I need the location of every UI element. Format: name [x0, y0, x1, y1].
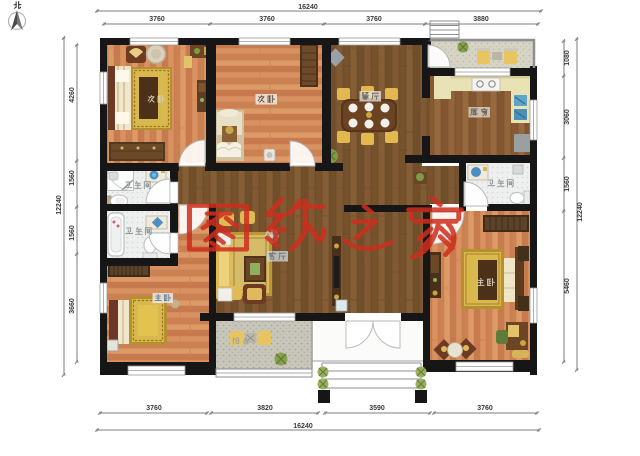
svg-text:16240: 16240 — [298, 4, 318, 11]
svg-text:12240: 12240 — [577, 202, 584, 222]
svg-text:3880: 3880 — [473, 16, 489, 23]
svg-text:16240: 16240 — [293, 423, 313, 430]
svg-text:3060: 3060 — [564, 109, 571, 125]
svg-text:3660: 3660 — [69, 298, 76, 314]
svg-text:12240: 12240 — [56, 195, 63, 215]
svg-text:3760: 3760 — [259, 16, 275, 23]
svg-text:3820: 3820 — [257, 405, 273, 412]
svg-text:3760: 3760 — [477, 405, 493, 412]
svg-text:5460: 5460 — [564, 278, 571, 294]
svg-text:3760: 3760 — [149, 16, 165, 23]
svg-text:3590: 3590 — [369, 405, 385, 412]
svg-text:3760: 3760 — [146, 405, 162, 412]
svg-text:1560: 1560 — [69, 225, 76, 241]
svg-text:3760: 3760 — [366, 16, 382, 23]
svg-text:1560: 1560 — [564, 176, 571, 192]
svg-text:4260: 4260 — [69, 87, 76, 103]
svg-text:1560: 1560 — [69, 170, 76, 186]
svg-text:1080: 1080 — [564, 50, 571, 66]
